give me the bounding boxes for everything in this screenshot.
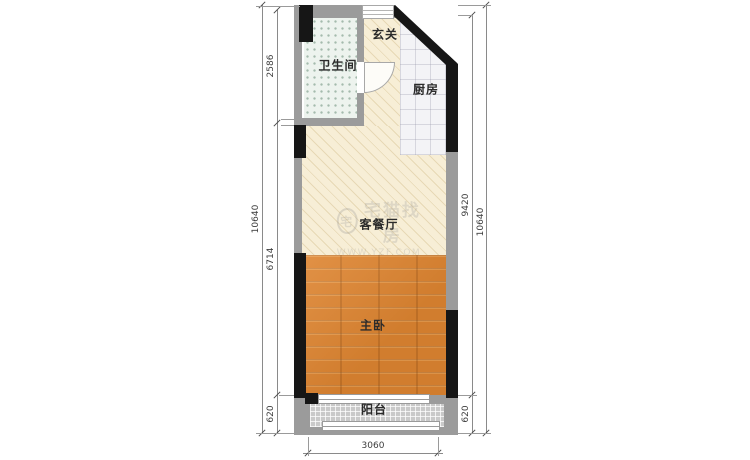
room-label-living-dining: 客餐厅: [359, 216, 398, 233]
dim-extension: [281, 125, 294, 126]
dim-label-2586: 2586: [266, 55, 276, 78]
room-label-master-bedroom: 主卧: [360, 317, 386, 334]
floor-plan: 宅 宅猫找房 WWW.YZF.COM 玄关 卫生间 厨房 客餐厅 主卧 阳台: [294, 5, 458, 435]
dim-extension: [458, 15, 473, 16]
dim-label-left-outer: 10640: [251, 205, 261, 234]
dim-extension: [438, 437, 439, 456]
room-label-balcony: 阳台: [361, 401, 387, 418]
dim-extension: [281, 119, 294, 120]
dim-label-right-outer: 10640: [476, 208, 486, 237]
entrance-door: [362, 5, 394, 19]
dim-extension: [308, 437, 309, 456]
dim-label-3060: 3060: [362, 441, 385, 451]
dim-extension: [458, 395, 477, 396]
room-label-kitchen: 厨房: [413, 81, 439, 98]
dim-extension: [458, 5, 491, 6]
dim-line-right-outer: [486, 5, 487, 433]
dim-label-620-left: 620: [266, 405, 276, 422]
dim-extension: [256, 6, 300, 7]
dim-extension: [279, 395, 294, 396]
room-label-bathroom: 卫生间: [318, 57, 357, 74]
dim-extension: [256, 433, 294, 434]
dim-label-6714: 6714: [266, 248, 276, 271]
dim-line-right-inner: [472, 15, 473, 433]
balcony-window: [322, 421, 440, 431]
dim-label-620-right: 620: [461, 405, 471, 422]
dim-label-9420: 9420: [461, 194, 471, 217]
dim-line-bottom: [303, 453, 443, 454]
floor-plan-canvas: 宅 宅猫找房 WWW.YZF.COM 玄关 卫生间 厨房 客餐厅 主卧 阳台 1…: [0, 0, 750, 460]
dim-line-left-inner: [277, 10, 278, 433]
dim-line-left-outer: [262, 5, 263, 433]
dim-extension: [458, 433, 491, 434]
room-label-foyer: 玄关: [372, 26, 398, 43]
